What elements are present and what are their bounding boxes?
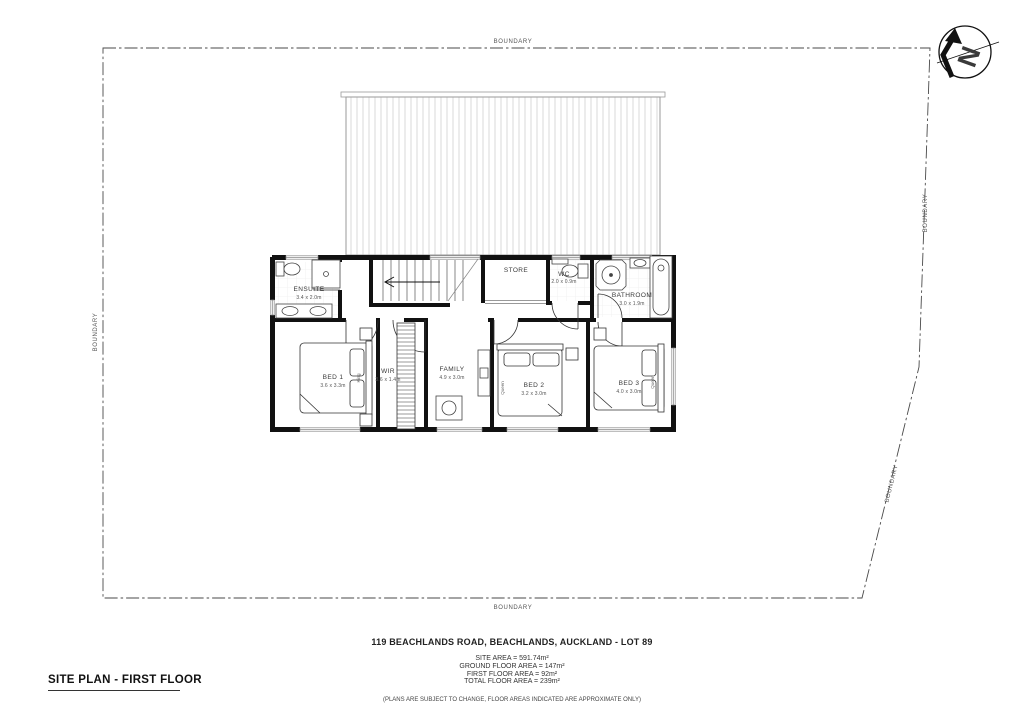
bed2 xyxy=(497,344,578,416)
pillow-icon xyxy=(350,380,364,407)
boundary-label-right-upper: BOUNDARY xyxy=(923,194,929,233)
family-furniture xyxy=(436,350,490,420)
room-label-bed3: BED 3 xyxy=(619,380,640,387)
bedside-table-icon xyxy=(360,328,372,340)
room-label-wir: WIR xyxy=(381,368,395,375)
room-dims-bed1: 3.6 x 3.3m xyxy=(320,383,345,389)
toilet-icon xyxy=(578,264,588,278)
pillow-icon xyxy=(504,353,530,366)
bed3-size-label: Queen xyxy=(650,375,655,389)
ground-floor-area: GROUND FLOOR AREA = 147m² xyxy=(0,663,1024,671)
title-underline xyxy=(48,690,180,691)
bed2-size-label: Queen xyxy=(500,381,505,395)
bedside-table-icon xyxy=(594,328,606,340)
room-label-ensuite: ENSUITE xyxy=(294,286,325,293)
pillow-icon xyxy=(642,350,656,376)
room-dims-wc: 2.0 x 0.9m xyxy=(551,279,576,285)
room-label-bathroom: BATHROOM xyxy=(612,292,652,299)
pillow-icon xyxy=(533,353,559,366)
room-dims-bed2: 3.2 x 3.0m xyxy=(521,391,546,397)
room-dims-bed3: 4.0 x 3.0m xyxy=(616,389,641,395)
bedside-table-icon xyxy=(360,414,372,426)
room-label-bed2: BED 2 xyxy=(524,382,545,389)
store-slider xyxy=(485,301,546,304)
basin-icon xyxy=(552,259,568,264)
room-label-store: STORE xyxy=(504,267,529,274)
drawing-title: SITE PLAN - FIRST FLOOR xyxy=(48,674,202,686)
disclaimer-note: (PLANS ARE SUBJECT TO CHANGE, FLOOR AREA… xyxy=(0,697,1024,703)
room-dims-ensuite: 3.4 x 2.0m xyxy=(296,295,321,301)
pillow-icon xyxy=(350,349,364,376)
roof-below xyxy=(341,92,665,255)
bed3 xyxy=(594,328,664,412)
boundary-label-bottom: BOUNDARY xyxy=(494,605,533,611)
north-arrow-icon: N xyxy=(937,26,999,78)
bedside-table-icon xyxy=(566,348,578,360)
room-label-wc: WC xyxy=(558,271,570,278)
site-area: SITE AREA = 591.74m² xyxy=(0,655,1024,663)
boundary-label-right-lower: BOUNDARY xyxy=(884,464,899,503)
room-label-bed1: BED 1 xyxy=(323,374,344,381)
floor-plan: ENSUITE 3.4 x 2.0m STORE WC 2.0 x 0.9m B… xyxy=(270,255,676,432)
toilet-icon xyxy=(276,262,284,276)
room-dims-bathroom: 3.0 x 1.9m xyxy=(619,301,644,307)
boundary-label-left: BOUNDARY xyxy=(93,313,99,352)
site-plan-drawing: BOUNDARY BOUNDARY BOUNDARY BOUNDARY BOUN… xyxy=(0,0,1024,724)
room-dims-family: 4.9 x 3.0m xyxy=(439,375,464,381)
bed1-size-label: King xyxy=(356,373,361,383)
north-arrow-letter: N xyxy=(952,43,987,72)
site-plan-page: BOUNDARY BOUNDARY BOUNDARY BOUNDARY BOUN… xyxy=(0,0,1024,724)
boundary-label-top: BOUNDARY xyxy=(494,39,533,45)
project-address: 119 BEACHLANDS ROAD, BEACHLANDS, AUCKLAN… xyxy=(0,637,1024,647)
stair-direction-arrow xyxy=(385,277,440,287)
room-dims-wir: 3.6 x 1.4m xyxy=(375,377,400,383)
staircase xyxy=(383,259,478,301)
wardrobe-shelving xyxy=(397,323,415,429)
room-label-family: FAMILY xyxy=(439,366,464,373)
